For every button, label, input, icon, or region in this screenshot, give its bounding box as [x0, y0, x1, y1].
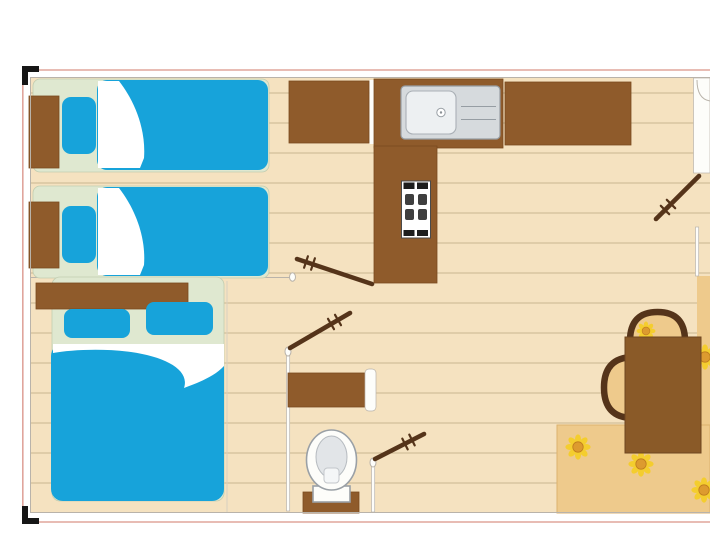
drain-dot	[440, 111, 442, 113]
counter-right	[505, 82, 631, 145]
pillow	[146, 302, 213, 335]
pillow	[62, 206, 96, 263]
wall-stub-entry	[696, 227, 699, 276]
headboard	[29, 202, 59, 268]
pillow	[64, 309, 130, 338]
toilet	[303, 430, 359, 513]
pillow	[62, 97, 96, 154]
cooktop	[402, 181, 431, 238]
wall-seam	[370, 80, 375, 144]
double-bedroom	[36, 277, 224, 501]
floorplan	[0, 0, 710, 533]
sink-unit	[401, 86, 500, 139]
sink-basin	[406, 91, 456, 134]
headboard	[29, 96, 59, 168]
double-bed	[36, 277, 224, 501]
wardrobe	[289, 81, 369, 143]
single-bed-bottom	[29, 186, 269, 278]
vanity	[288, 373, 368, 407]
toilet-flush	[324, 468, 339, 483]
dining-table	[625, 337, 701, 453]
single-bed-top	[29, 79, 269, 172]
vanity-basin	[365, 369, 376, 411]
wall-stub-right	[372, 466, 375, 512]
